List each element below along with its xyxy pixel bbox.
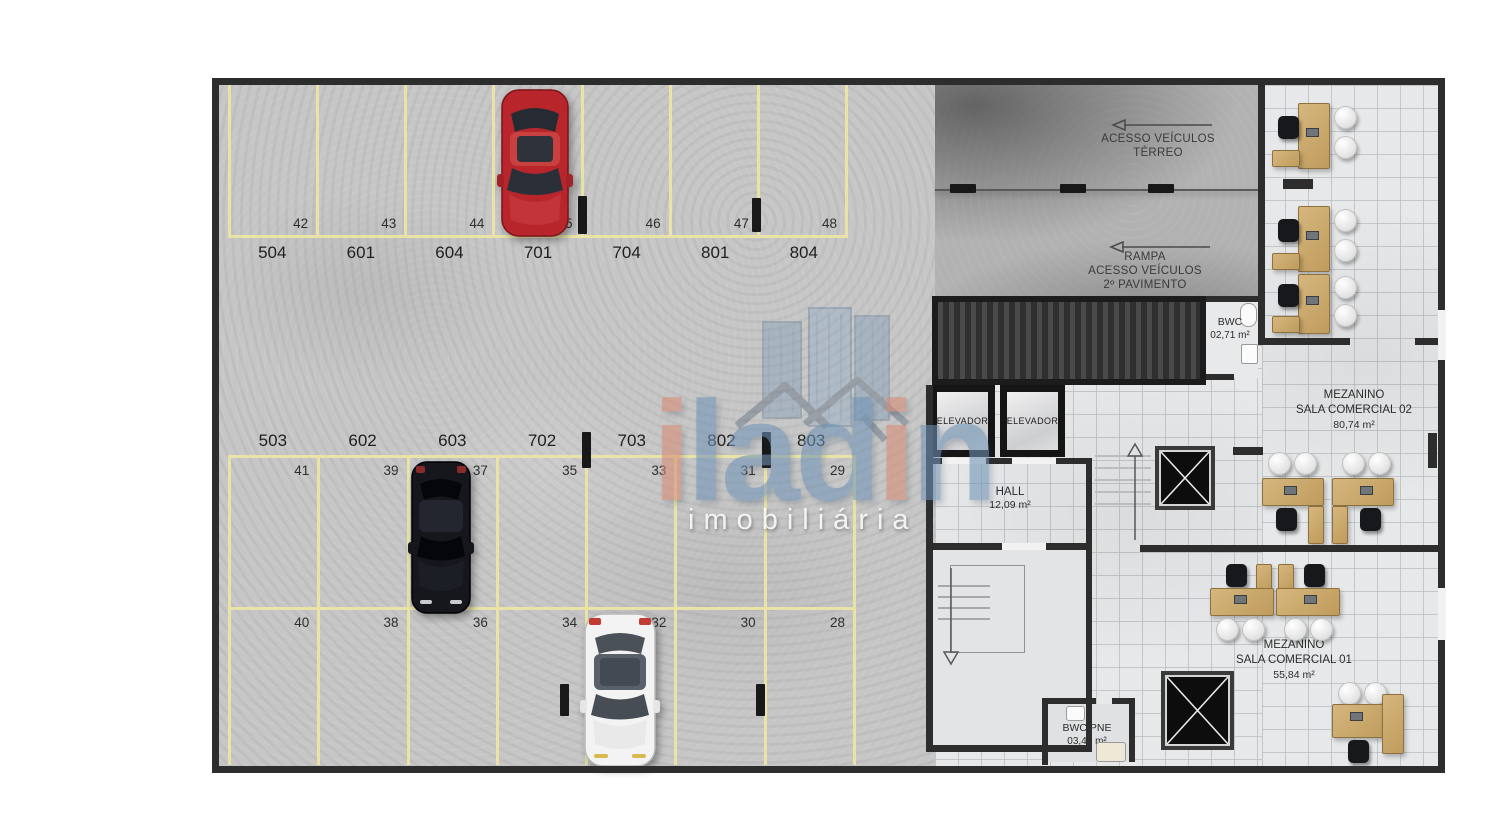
unit-label: 601 (317, 243, 406, 263)
parking-stall: 39 (317, 458, 406, 607)
pillar (756, 684, 765, 716)
pillar (582, 432, 591, 468)
unit-label: 704 (582, 243, 671, 263)
office-chair (1360, 508, 1381, 531)
white-car (580, 612, 660, 768)
desk-return (1256, 564, 1272, 590)
toilet-icon (1066, 706, 1085, 721)
sign-acesso-terreo: ACESSO VEÍCULOS TÉRREO (1068, 132, 1248, 160)
parking-row-middle: 41 39 37 35 33 31 29 (228, 455, 856, 607)
parking-stall: 40 (228, 610, 317, 765)
parking-stall: 28 (764, 610, 856, 765)
desk-group (1276, 562, 1342, 646)
red-car (497, 88, 573, 238)
sign-line: RAMPA (1055, 250, 1235, 264)
desk-group (1332, 682, 1408, 768)
visitor-chair (1334, 239, 1357, 262)
room-title: HALL (935, 486, 1085, 499)
visitor-chair (1334, 304, 1357, 327)
room-title: SALA COMERCIAL 02 (1268, 403, 1440, 418)
office-chair (1304, 564, 1325, 587)
stair-direction-arrow (938, 560, 964, 670)
wall (1140, 545, 1438, 552)
spot-number: 34 (562, 615, 577, 630)
monitor (1284, 486, 1297, 495)
visitor-chair (1268, 452, 1291, 475)
spot-number: 33 (651, 463, 666, 478)
desk-return (1278, 564, 1294, 590)
spot-number: 37 (473, 463, 488, 478)
desk-group (1272, 203, 1362, 273)
visitor-chair (1242, 618, 1265, 641)
pillar (560, 684, 569, 716)
floor-plan-page: 42 43 44 45 46 47 48 504 601 604 701 704… (0, 0, 1487, 837)
unit-label: 804 (759, 243, 848, 263)
wall (1048, 698, 1096, 704)
unit-label: 604 (405, 243, 494, 263)
visitor-chair (1334, 106, 1357, 129)
visitor-chair (1334, 276, 1357, 299)
door-opening (1438, 588, 1446, 640)
unit-label: 703 (587, 431, 677, 451)
ramp-hatch (932, 296, 1206, 385)
desk-return (1272, 316, 1300, 333)
visitor-chair (1310, 618, 1333, 641)
sink-icon (1096, 742, 1126, 762)
parking-stall: 38 (317, 610, 406, 765)
spot-number: 30 (741, 615, 756, 630)
spot-number: 41 (294, 463, 309, 478)
wall (1206, 296, 1262, 302)
spot-number: 43 (381, 216, 396, 231)
door-opening (1438, 310, 1446, 360)
desk-group (1332, 452, 1398, 548)
wall (1415, 338, 1438, 345)
parking-stall: 42 (228, 85, 316, 235)
desk-group (1272, 100, 1362, 170)
monitor (1304, 595, 1317, 604)
unit-label: 801 (671, 243, 760, 263)
room-area: 55,84 m² (1208, 668, 1380, 682)
unit-label: 702 (497, 431, 587, 451)
sign-rampa: RAMPA ACESSO VEÍCULOS 2º PAVIMENTO (1055, 250, 1235, 292)
unit-label: 803 (766, 431, 856, 451)
wall (1042, 698, 1048, 765)
office-chair (1226, 564, 1247, 587)
pillar (578, 196, 587, 234)
parking-stall: 48 (757, 85, 848, 235)
wall (1086, 462, 1092, 752)
spot-number: 35 (562, 463, 577, 478)
spot-number: 29 (830, 463, 845, 478)
unit-label: 602 (318, 431, 408, 451)
desk-group (1210, 562, 1276, 646)
bwc-label: BWC 02,71 m² (1202, 316, 1258, 342)
visitor-chair (1294, 452, 1317, 475)
office-chair (1276, 508, 1297, 531)
unit-label: 701 (494, 243, 583, 263)
door-opening (1012, 458, 1056, 464)
room-area: 12,09 m² (935, 499, 1085, 512)
pillar (1148, 184, 1174, 193)
desk (1332, 704, 1386, 738)
spot-number: 31 (741, 463, 756, 478)
spot-number: 38 (384, 615, 399, 630)
door-opening (942, 458, 986, 464)
desk-return (1272, 150, 1300, 167)
spot-number: 39 (384, 463, 399, 478)
room-area: 02,71 m² (1202, 329, 1258, 342)
spot-number: 28 (830, 615, 845, 630)
unit-labels-top: 504 601 604 701 704 801 804 (228, 243, 848, 263)
unit-label: 802 (677, 431, 767, 451)
parking-stall: 44 (404, 85, 492, 235)
room-title: BWC (1202, 316, 1258, 329)
unit-label: 504 (228, 243, 317, 263)
monitor (1306, 296, 1319, 305)
desk-return (1272, 253, 1300, 270)
elevator-1: ELEVADOR (930, 385, 995, 457)
parking-stall: 35 (496, 458, 585, 607)
visitor-chair (1216, 618, 1239, 641)
desk-group (1272, 272, 1362, 336)
wall (1233, 447, 1263, 455)
lane-divider (935, 189, 1258, 191)
wall (1428, 433, 1437, 468)
spot-number: 40 (294, 615, 309, 630)
office-chair (1278, 219, 1299, 242)
wall (1258, 338, 1350, 345)
spot-number: 42 (293, 216, 308, 231)
door-opening (1002, 543, 1046, 550)
visitor-chair (1334, 136, 1357, 159)
monitor (1360, 486, 1373, 495)
hall-label: HALL 12,09 m² (935, 486, 1085, 512)
visitor-chair (1284, 618, 1307, 641)
visitor-chair (1368, 452, 1391, 475)
desk-group (1262, 452, 1328, 548)
elevator-label: ELEVADOR (1007, 416, 1059, 426)
parking-stall: 47 (669, 85, 757, 235)
sign-line: 2º PAVIMENTO (1055, 278, 1235, 292)
shaft-lower (1161, 671, 1234, 750)
parking-stall: 36 (407, 610, 496, 765)
spot-number: 46 (646, 216, 661, 231)
visitor-chair (1338, 682, 1361, 705)
wall (926, 745, 1092, 752)
parking-stall: 31 (674, 458, 763, 607)
elevator-label: ELEVADOR (937, 416, 989, 426)
spot-number: 36 (473, 615, 488, 630)
pillar (752, 198, 761, 232)
parking-stall: 29 (764, 458, 856, 607)
parking-stall: 46 (581, 85, 669, 235)
room-title: SALA COMERCIAL 01 (1208, 653, 1380, 668)
parking-stall: 41 (228, 458, 317, 607)
wall (1258, 85, 1265, 345)
spot-number: 47 (734, 216, 749, 231)
office-chair (1278, 284, 1299, 307)
desk-return (1332, 506, 1348, 544)
wall (1206, 374, 1234, 380)
visitor-chair (1342, 452, 1365, 475)
unit-label: 503 (228, 431, 318, 451)
room-title: MEZANINO (1268, 388, 1440, 403)
pillar (762, 432, 771, 468)
sala-comercial-02-label: MEZANINO SALA COMERCIAL 02 80,74 m² (1268, 388, 1440, 432)
arrow-left-icon (1110, 118, 1214, 132)
monitor (1350, 712, 1363, 721)
monitor (1234, 595, 1247, 604)
sink-icon (1241, 344, 1258, 364)
room-area: 80,74 m² (1268, 418, 1440, 432)
parking-stall: 34 (496, 610, 585, 765)
desk-return (1382, 694, 1404, 754)
wall (926, 385, 933, 752)
parking-stall: 33 (585, 458, 674, 607)
pillar (1060, 184, 1086, 193)
monitor (1306, 128, 1319, 137)
wall (1283, 179, 1313, 189)
desk-return (1308, 506, 1324, 544)
elevator-2: ELEVADOR (1000, 385, 1065, 457)
parking-stall: 43 (316, 85, 404, 235)
sign-line: ACESSO VEÍCULOS (1055, 264, 1235, 278)
sign-line: TÉRREO (1068, 146, 1248, 160)
pillar (950, 184, 976, 193)
unit-label: 603 (407, 431, 497, 451)
office-chair (1348, 740, 1369, 763)
spot-number: 48 (822, 216, 837, 231)
black-car (408, 460, 474, 615)
monitor (1306, 231, 1319, 240)
visitor-chair (1334, 209, 1357, 232)
wall (1129, 698, 1135, 762)
parking-stall: 30 (674, 610, 763, 765)
office-chair (1278, 116, 1299, 139)
shaft-upper (1155, 446, 1215, 510)
stair-up-arrow (1122, 440, 1148, 545)
spot-number: 44 (469, 216, 484, 231)
sign-line: ACESSO VEÍCULOS (1068, 132, 1248, 146)
